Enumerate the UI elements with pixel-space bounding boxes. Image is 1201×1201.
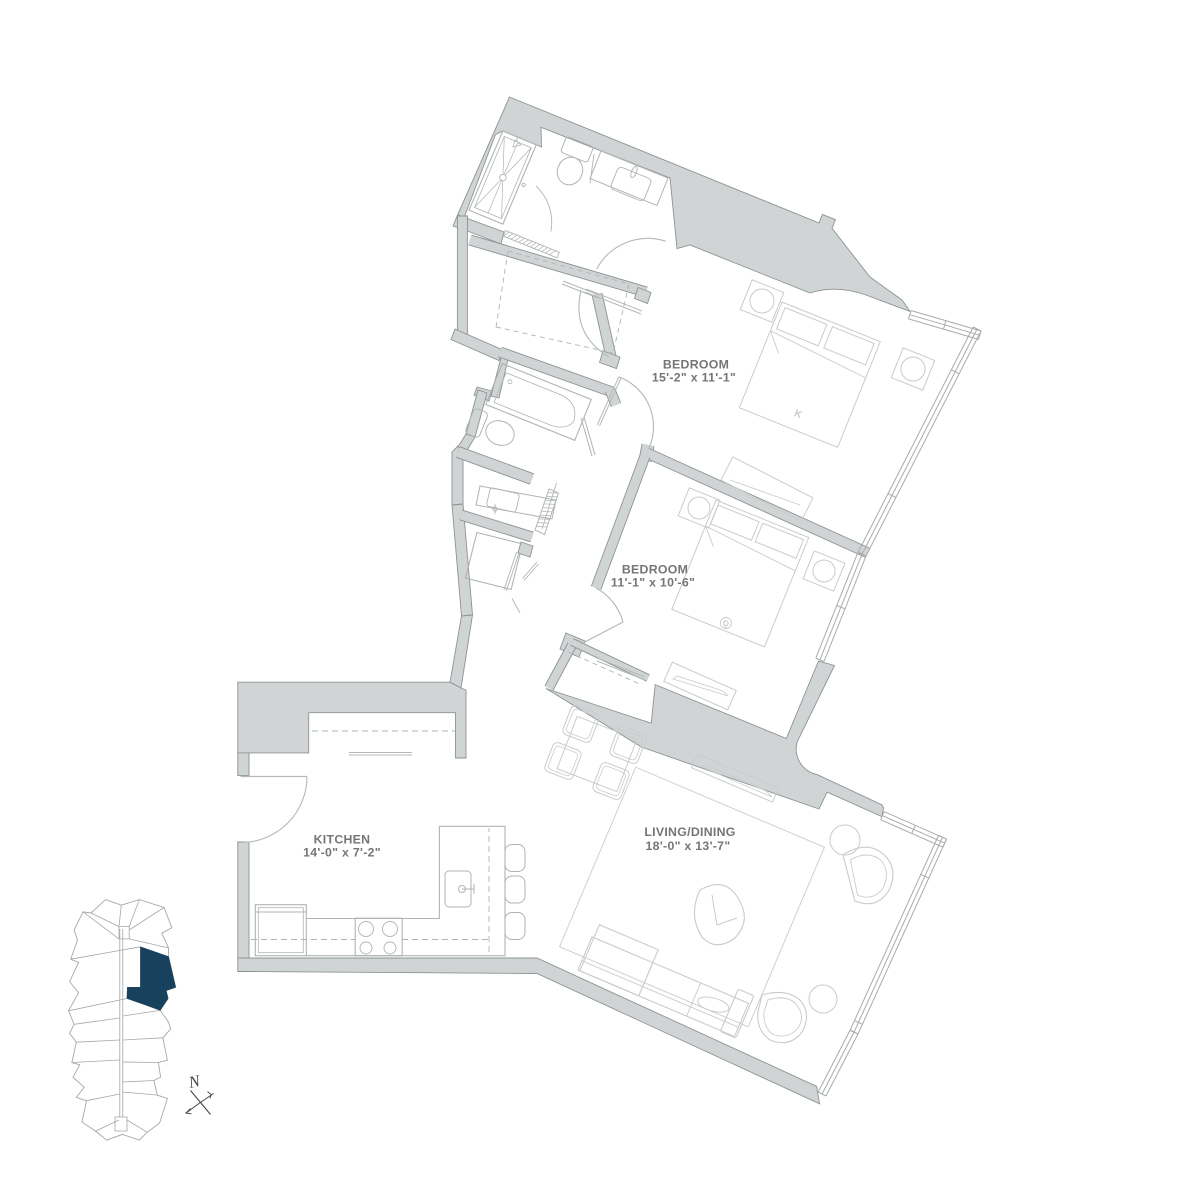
svg-text:11'-1" x 10'-6": 11'-1" x 10'-6" — [611, 576, 695, 590]
svg-text:KITCHEN: KITCHEN — [314, 832, 371, 846]
svg-text:BEDROOM: BEDROOM — [622, 563, 688, 577]
svg-text:18'-0" x 13'-7": 18'-0" x 13'-7" — [646, 839, 731, 853]
svg-text:BEDROOM: BEDROOM — [663, 357, 729, 371]
svg-text:15'-2" x 11'-1": 15'-2" x 11'-1" — [652, 370, 736, 384]
svg-text:LIVING/DINING: LIVING/DINING — [644, 825, 735, 839]
svg-text:14'-0" x 7'-2": 14'-0" x 7'-2" — [303, 845, 381, 859]
